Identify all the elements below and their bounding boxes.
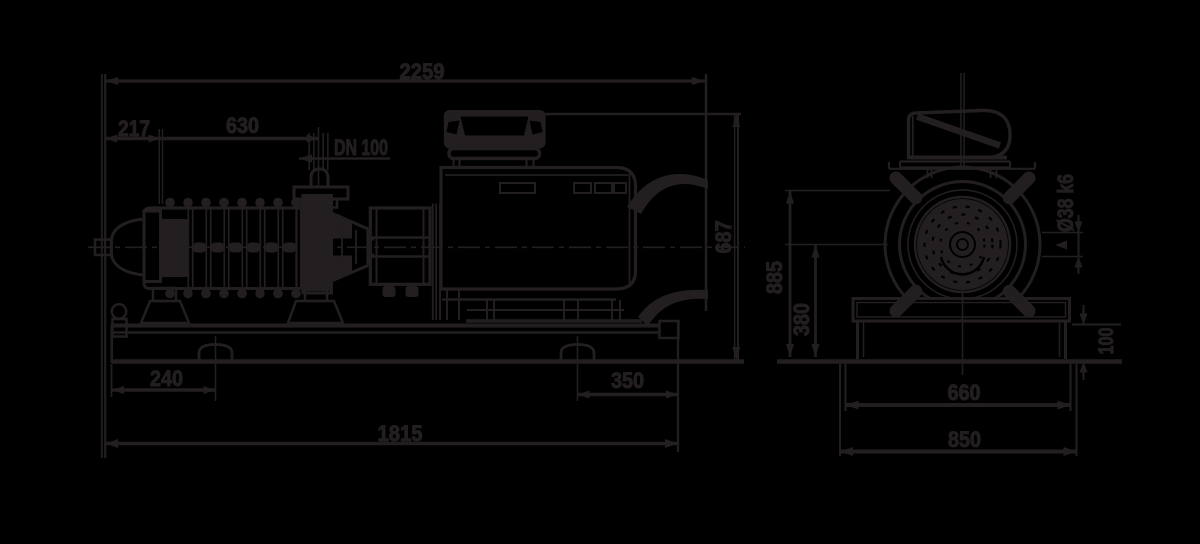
- svg-text:687: 687: [711, 221, 736, 254]
- svg-text:850: 850: [948, 427, 981, 452]
- svg-text:660: 660: [948, 380, 981, 405]
- svg-text:380: 380: [789, 303, 814, 336]
- svg-text:Ø38 k6: Ø38 k6: [1053, 174, 1078, 232]
- svg-text:885: 885: [762, 261, 787, 294]
- svg-text:350: 350: [611, 368, 644, 393]
- svg-text:240: 240: [150, 366, 183, 391]
- svg-text:1815: 1815: [378, 421, 423, 446]
- svg-text:DN 100: DN 100: [334, 135, 388, 160]
- svg-text:100: 100: [1095, 328, 1118, 355]
- svg-text:2259: 2259: [400, 59, 445, 84]
- svg-text:217: 217: [118, 116, 150, 141]
- svg-text:630: 630: [226, 113, 259, 138]
